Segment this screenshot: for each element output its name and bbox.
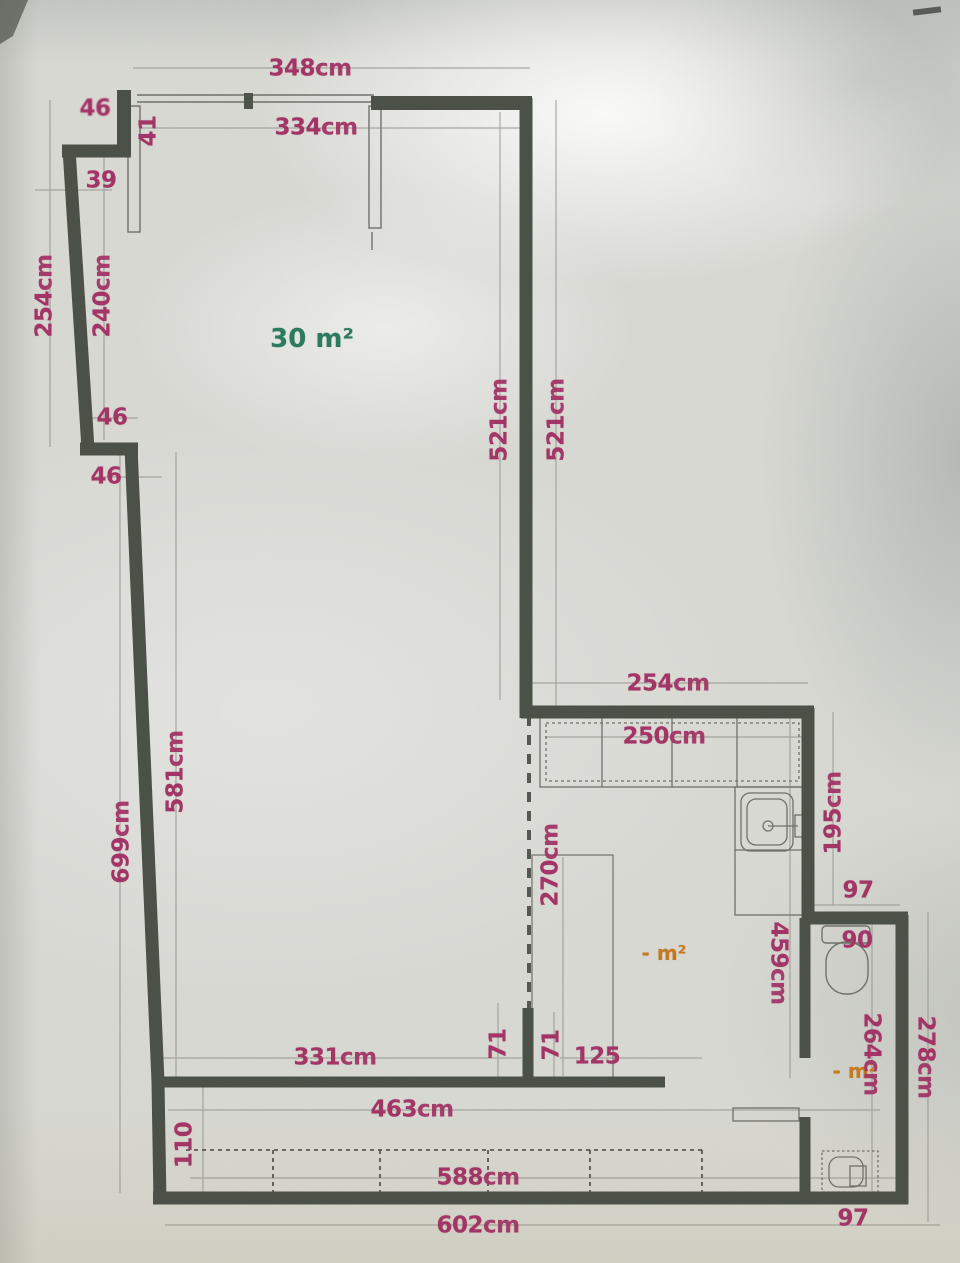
dim-left-inner-height-upper: 240cm bbox=[92, 254, 115, 337]
dim-value: 463 bbox=[370, 1097, 417, 1123]
dim-bottom-overall-width: 602cm bbox=[436, 1215, 519, 1238]
dim-left-upper-offset: 39 bbox=[85, 170, 116, 193]
dim-value: 254 bbox=[32, 291, 58, 338]
dim-unit: cm bbox=[321, 115, 358, 141]
dim-opening-width: 125 bbox=[574, 1046, 621, 1069]
dim-value: 46 bbox=[90, 464, 121, 490]
dim-toilet-width: 90 bbox=[841, 930, 872, 953]
dim-value: 348 bbox=[268, 56, 315, 82]
dim-value: 699 bbox=[109, 837, 135, 884]
dim-wardrobe-width: 588cm bbox=[436, 1167, 519, 1190]
area-value: - bbox=[642, 941, 650, 965]
dim-value: 264 bbox=[859, 1012, 885, 1059]
dim-value: 254 bbox=[626, 671, 673, 697]
photo-smudge-mark bbox=[905, 0, 960, 30]
dim-unit: cm bbox=[315, 56, 352, 82]
dim-unit: cm bbox=[32, 254, 58, 291]
area-unit: m² bbox=[657, 941, 687, 965]
floor-plan-drawing bbox=[0, 0, 960, 1263]
dim-unit: cm bbox=[340, 1045, 377, 1071]
dim-kitchen-width-inner: 250cm bbox=[622, 726, 705, 749]
dim-value: 521 bbox=[487, 415, 513, 462]
dim-value: 270 bbox=[538, 860, 564, 907]
paper-grain-texture bbox=[0, 0, 960, 1263]
dim-bottom-mid-width: 463cm bbox=[370, 1099, 453, 1122]
dim-unit: cm bbox=[669, 724, 706, 750]
dim-table-depth: 270cm bbox=[540, 823, 563, 906]
dim-value: 97 bbox=[842, 878, 873, 904]
dim-stub-right-height: 71 bbox=[541, 1029, 564, 1060]
dim-unit: cm bbox=[483, 1165, 520, 1191]
dim-bathroom-bottom-width: 97 bbox=[837, 1208, 868, 1231]
dim-kitchen-height-inner: 459cm bbox=[767, 921, 790, 1004]
dim-bathroom-height-outer: 278cm bbox=[914, 1015, 937, 1098]
dim-left-inner-height-lower: 581cm bbox=[165, 730, 188, 813]
area-value: - bbox=[833, 1059, 841, 1083]
dim-unit: cm bbox=[538, 823, 564, 860]
dim-value: 90 bbox=[841, 928, 872, 954]
dim-unit: cm bbox=[109, 800, 135, 837]
dim-value: 71 bbox=[486, 1028, 512, 1059]
dim-value: 459 bbox=[766, 921, 792, 968]
area-unit: m² bbox=[315, 324, 353, 354]
kitchen-area-label: - m² bbox=[642, 943, 687, 963]
dim-unit: cm bbox=[766, 968, 792, 1005]
dim-value: 97 bbox=[837, 1206, 868, 1232]
dim-bathroom-height-inner: 264cm bbox=[860, 1012, 883, 1095]
dim-unit: cm bbox=[673, 671, 710, 697]
dim-value: 71 bbox=[539, 1029, 565, 1060]
dim-unit: cm bbox=[483, 1213, 520, 1239]
dim-value: 588 bbox=[436, 1165, 483, 1191]
dim-stub-left-height: 71 bbox=[488, 1028, 511, 1059]
dim-top-corner-niche: 46 bbox=[79, 98, 110, 121]
dim-unit: cm bbox=[859, 1059, 885, 1096]
dim-value: 46 bbox=[79, 96, 110, 122]
dim-value: 331 bbox=[293, 1045, 340, 1071]
dim-unit: cm bbox=[163, 730, 189, 767]
dim-unit: cm bbox=[913, 1062, 939, 1099]
dim-left-step-lower: 46 bbox=[90, 466, 121, 489]
dim-value: 46 bbox=[96, 405, 127, 431]
floor-plan-photo: 30 m² - m² - m² 348cm 334cm 46 41 39 254… bbox=[0, 0, 960, 1263]
dim-value: 602 bbox=[436, 1213, 483, 1239]
dim-left-outer-height-upper: 254cm bbox=[34, 254, 57, 337]
main-room-area-label: 30 m² bbox=[270, 326, 354, 352]
dim-value: 250 bbox=[622, 724, 669, 750]
dim-value: 521 bbox=[544, 415, 570, 462]
dim-value: 195 bbox=[821, 808, 847, 855]
dim-unit: cm bbox=[821, 771, 847, 808]
dim-value: 110 bbox=[172, 1122, 198, 1169]
dim-wardrobe-depth: 110 bbox=[174, 1122, 197, 1169]
dim-main-height-outer: 521cm bbox=[546, 378, 569, 461]
photo-corner-mark bbox=[0, 0, 60, 60]
dim-top-inner: 334cm bbox=[274, 117, 357, 140]
dim-main-height-inner: 521cm bbox=[489, 378, 512, 461]
dim-value: 278 bbox=[913, 1015, 939, 1062]
dim-unit: cm bbox=[90, 254, 116, 291]
dim-value: 125 bbox=[574, 1044, 621, 1070]
dim-kitchen-width-outer: 254cm bbox=[626, 673, 709, 696]
dim-value: 581 bbox=[163, 767, 189, 814]
dim-unit: cm bbox=[487, 378, 513, 415]
dim-left-step-upper: 46 bbox=[96, 407, 127, 430]
dim-bottom-inner-width: 331cm bbox=[293, 1047, 376, 1070]
dim-unit: cm bbox=[417, 1097, 454, 1123]
dim-top-overall: 348cm bbox=[268, 58, 351, 81]
dim-value: 240 bbox=[90, 291, 116, 338]
dim-kitchen-height-right: 195cm bbox=[823, 771, 846, 854]
dim-unit: cm bbox=[544, 378, 570, 415]
dim-value: 41 bbox=[136, 115, 162, 146]
dim-left-outer-height-lower: 699cm bbox=[111, 800, 134, 883]
dim-window-bay: 41 bbox=[138, 115, 161, 146]
dim-bathroom-top-width: 97 bbox=[842, 880, 873, 903]
dim-value: 334 bbox=[274, 115, 321, 141]
dim-value: 39 bbox=[85, 168, 116, 194]
area-value: 30 bbox=[270, 324, 306, 354]
